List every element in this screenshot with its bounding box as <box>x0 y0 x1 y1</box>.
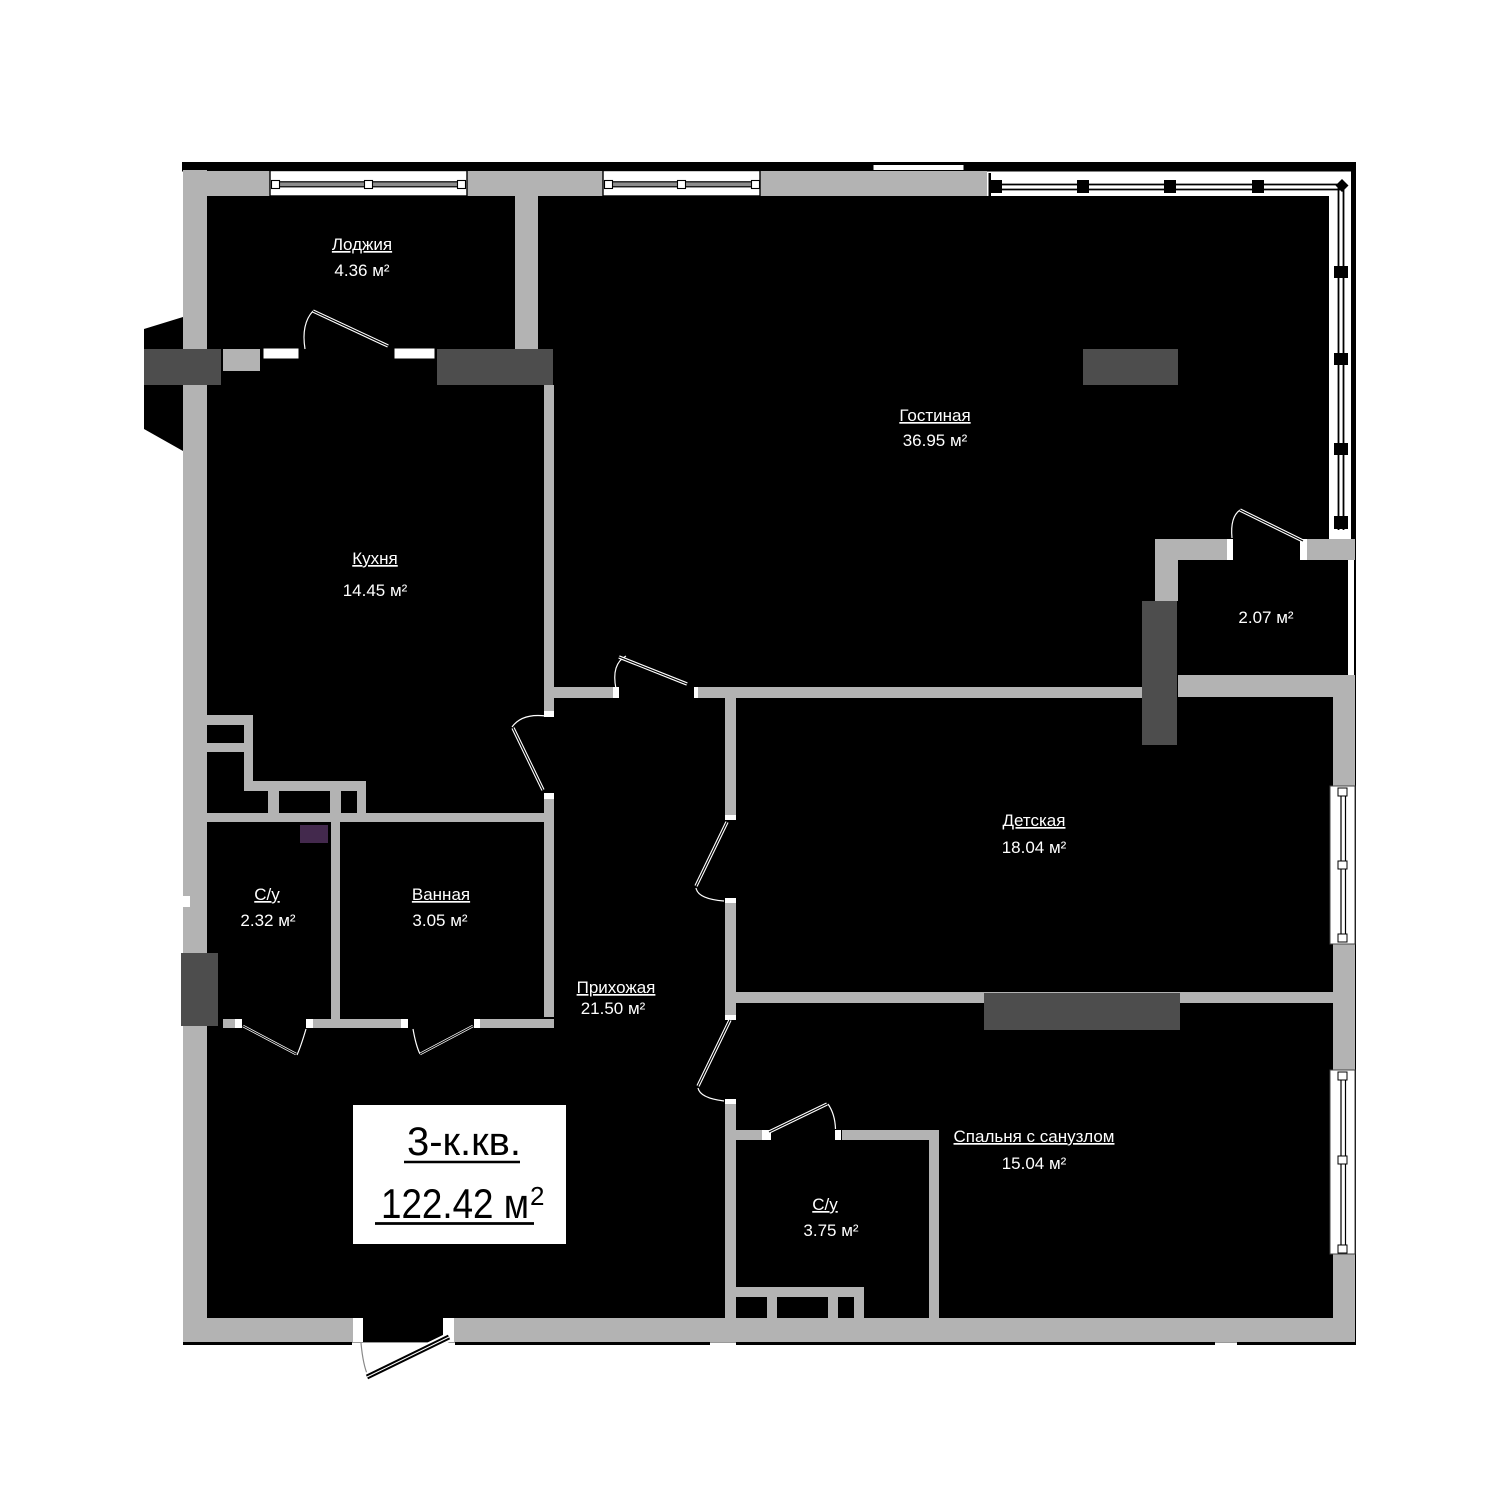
svg-text:4.36 м²: 4.36 м² <box>334 261 389 280</box>
svg-text:2: 2 <box>530 1181 544 1211</box>
svg-text:2.32 м²: 2.32 м² <box>240 911 295 930</box>
svg-text:Детская: Детская <box>1003 811 1066 830</box>
svg-text:15.04 м²: 15.04 м² <box>1002 1154 1067 1173</box>
svg-text:Спальня с санузлом: Спальня с санузлом <box>954 1127 1115 1146</box>
svg-text:3.05 м²: 3.05 м² <box>412 911 467 930</box>
svg-text:122.42 м: 122.42 м <box>381 1180 529 1227</box>
svg-text:3.75 м²: 3.75 м² <box>803 1221 858 1240</box>
svg-text:Кухня: Кухня <box>352 549 398 568</box>
svg-text:36.95 м²: 36.95 м² <box>903 431 968 450</box>
svg-text:Прихожая: Прихожая <box>577 978 656 997</box>
svg-text:18.04 м²: 18.04 м² <box>1002 838 1067 857</box>
svg-text:Лоджия: Лоджия <box>332 235 392 254</box>
svg-text:С/у: С/у <box>812 1195 838 1214</box>
svg-text:2.07 м²: 2.07 м² <box>1238 608 1293 627</box>
svg-text:Ванная: Ванная <box>412 885 470 904</box>
svg-text:Гостиная: Гостиная <box>899 406 970 425</box>
svg-text:С/у: С/у <box>254 885 280 904</box>
svg-text:21.50 м²: 21.50 м² <box>581 999 646 1018</box>
svg-text:3-к.кв.: 3-к.кв. <box>407 1120 521 1164</box>
svg-text:14.45 м²: 14.45 м² <box>343 581 408 600</box>
